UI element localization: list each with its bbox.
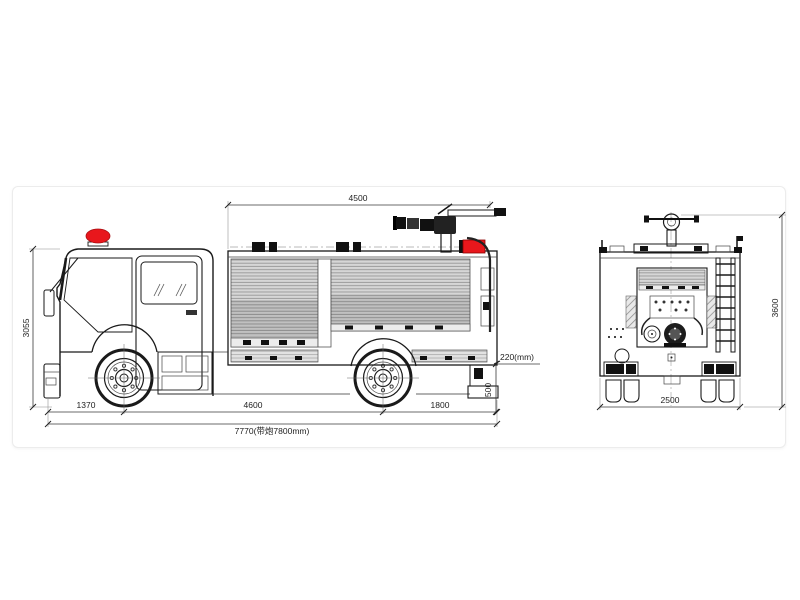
monitor-pipe-cap: [494, 208, 506, 216]
side-view: 4500 3055 1370 4600 1800 7770(带炮78: [21, 193, 540, 436]
front-wheel-arch: [92, 325, 157, 352]
roller-shutter-middle: [331, 259, 470, 331]
rear-tires-left: [606, 380, 639, 402]
front-bumper: [44, 364, 60, 398]
cab-door: [136, 256, 202, 390]
monitor-body: [434, 216, 456, 234]
dim-rear-overhang: 1800: [431, 400, 450, 410]
filler-cap: [615, 349, 629, 363]
fire-truck-blueprint: 4500 3055 1370 4600 1800 7770(带炮78: [0, 0, 800, 600]
under-cab-equipment-box: [158, 352, 212, 394]
rivet-dots: [608, 328, 624, 338]
windshield-glass: [64, 258, 132, 332]
taillight-left: [604, 362, 638, 376]
cab: [44, 229, 213, 398]
pump-bay: [637, 268, 707, 347]
beacon-light: [86, 229, 110, 243]
dim-rear-platform-height: 500: [483, 383, 493, 397]
roof-fitting-left: [610, 246, 624, 252]
rear-view: 2500 3600: [597, 212, 786, 410]
dim-rear-step: 220(mm): [500, 352, 534, 362]
roof-corner-cap-right: [734, 247, 742, 253]
rear-wheel: [347, 344, 419, 414]
rear-access-ladder: [716, 258, 735, 352]
roof-fitting-right: [716, 246, 730, 252]
side-mirror: [44, 290, 54, 316]
dim-overall-width: 2500: [661, 395, 680, 405]
shutter-divider-post: [318, 259, 331, 347]
center-handle: [668, 354, 675, 361]
pump-control-panel: [650, 296, 694, 318]
dim-rear-overall-height: 3600: [770, 298, 780, 317]
cab-outline: [57, 249, 213, 396]
dim-overall-height: 3055: [21, 318, 31, 337]
drawing-canvas: 4500 3055 1370 4600 1800 7770(带炮78: [0, 0, 800, 600]
door-handle: [186, 310, 197, 315]
dim-total-length: 7770(带炮7800mm): [235, 426, 310, 436]
fog-lamp: [46, 378, 56, 385]
door-window: [141, 262, 197, 304]
pump-bay-shutter: [639, 270, 705, 285]
glass-reflection-marks: [154, 284, 186, 296]
roof-corner-cap-left: [599, 247, 607, 253]
dim-front-overhang: 1370: [77, 400, 96, 410]
pump-hose-right: [694, 318, 702, 335]
rear-tires-right: [701, 380, 734, 402]
truck-body: [160, 242, 498, 398]
hatched-pad-left: [626, 296, 636, 328]
fire-monitor-rear: [644, 214, 699, 246]
dim-body-length: 4500: [349, 193, 368, 203]
rear-face-fittings: [481, 268, 494, 326]
monitor-riser-pipe: [441, 232, 451, 252]
monitor-top-pipe: [448, 210, 496, 216]
dim-wheelbase: 4600: [244, 400, 263, 410]
pressure-gauge: [644, 326, 660, 342]
roller-shutter-front: [231, 259, 318, 347]
lower-skirt-shutter-front: [231, 350, 318, 362]
monitor-barrel: [393, 216, 434, 231]
tow-hitch: [664, 376, 680, 384]
front-wheel: [88, 344, 160, 414]
red-box-bracket: [459, 240, 463, 253]
monitor-handle: [438, 204, 452, 214]
lower-skirt-shutter-rear: [412, 350, 487, 362]
taillight-right: [702, 362, 736, 376]
tow-hook: [474, 368, 483, 379]
water-pump: [664, 323, 686, 347]
